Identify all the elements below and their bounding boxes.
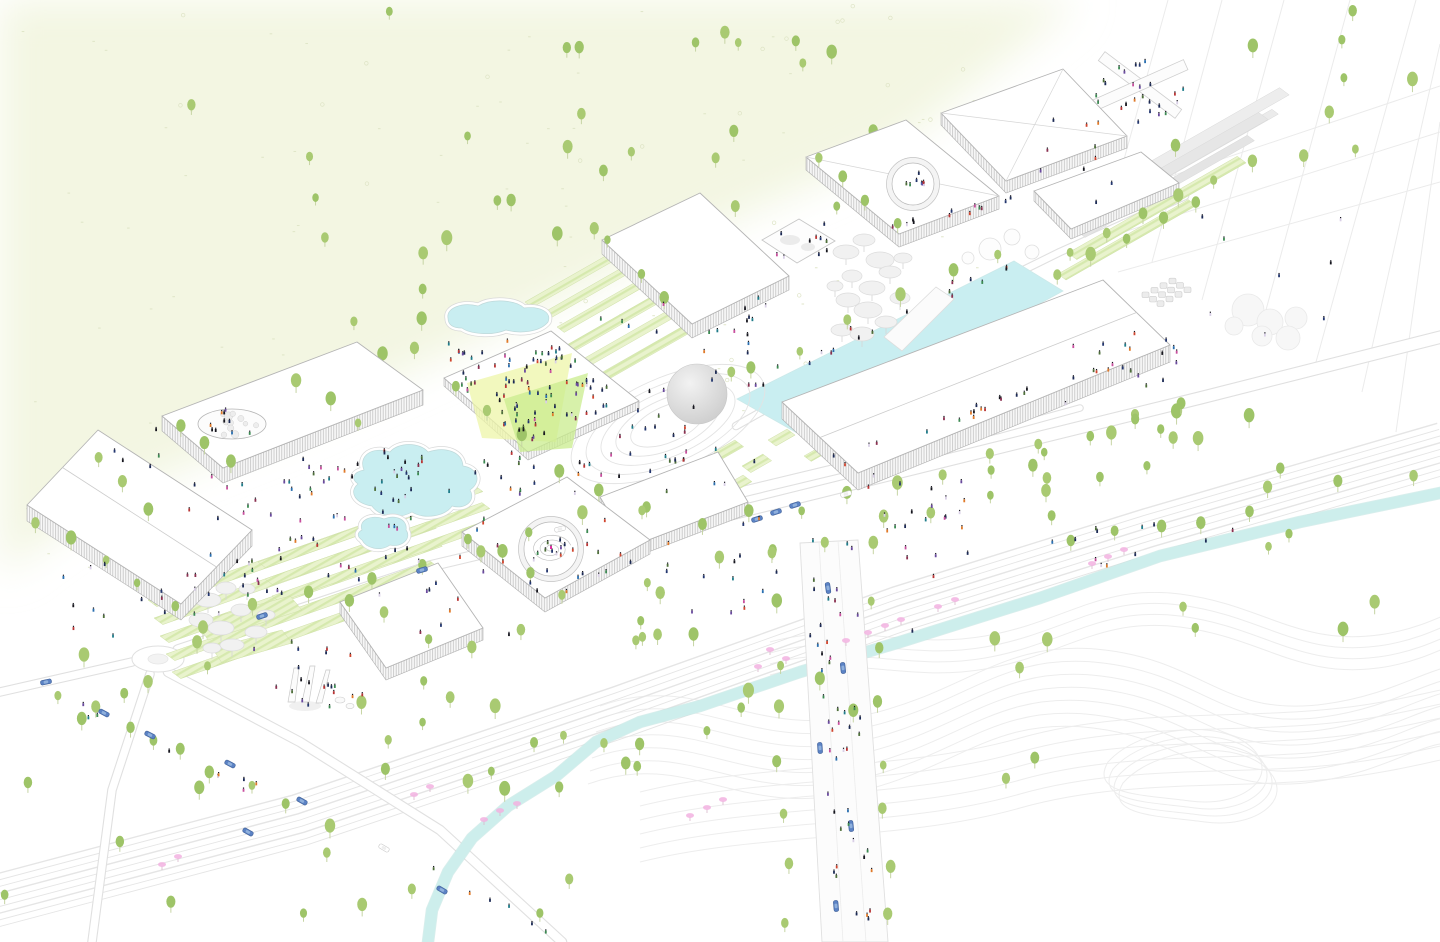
car	[378, 843, 390, 852]
terrain-contours	[588, 592, 1440, 862]
car	[98, 708, 110, 717]
building-pavilion-southwest	[340, 563, 483, 680]
car	[817, 742, 822, 753]
masterplan-illustration-svg	[0, 0, 1440, 942]
car	[840, 662, 846, 673]
car	[751, 515, 763, 523]
car	[833, 900, 839, 911]
car	[224, 759, 236, 768]
site-plan-canvas	[0, 0, 1440, 942]
